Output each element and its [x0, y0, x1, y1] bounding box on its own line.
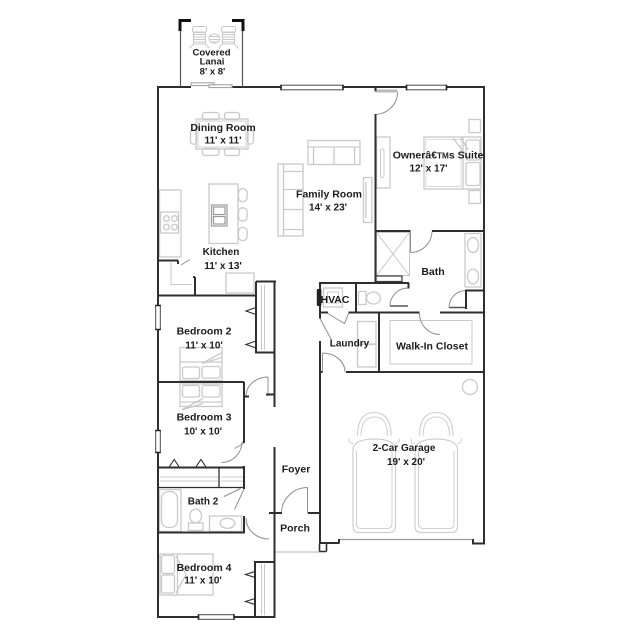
svg-text:14' x 23': 14' x 23' — [309, 203, 347, 214]
svg-text:Family Room: Family Room — [296, 189, 362, 201]
svg-text:11' x 11': 11' x 11' — [204, 136, 241, 147]
svg-text:11' x 10': 11' x 10' — [185, 341, 223, 352]
svg-text:Walk-In Closet: Walk-In Closet — [396, 341, 468, 353]
svg-text:Bath 2: Bath 2 — [188, 497, 219, 508]
svg-text:Bedroom 2: Bedroom 2 — [177, 326, 232, 338]
svg-text:10' x 10': 10' x 10' — [184, 427, 222, 438]
svg-text:2-Car Garage: 2-Car Garage — [373, 443, 436, 454]
svg-text:Bedroom 4: Bedroom 4 — [177, 562, 232, 574]
svg-text:11' x 13': 11' x 13' — [204, 261, 242, 272]
svg-text:Bedroom 3: Bedroom 3 — [177, 412, 232, 424]
svg-text:11' x 10': 11' x 10' — [184, 576, 222, 587]
svg-text:19' x 20': 19' x 20' — [387, 457, 425, 468]
svg-text:HVAC: HVAC — [321, 294, 350, 306]
svg-text:8' x 8': 8' x 8' — [200, 67, 226, 78]
svg-text:Ownerâ€TMs Suite: Ownerâ€TMs Suite — [393, 150, 484, 162]
svg-text:Kitchen: Kitchen — [203, 247, 240, 258]
svg-text:12' x 17': 12' x 17' — [409, 164, 447, 175]
svg-text:Dining Room: Dining Room — [190, 122, 255, 134]
svg-text:Foyer: Foyer — [282, 464, 311, 476]
svg-text:Laundry: Laundry — [330, 339, 370, 350]
svg-text:Porch: Porch — [280, 523, 310, 535]
svg-text:Bath: Bath — [421, 266, 444, 278]
